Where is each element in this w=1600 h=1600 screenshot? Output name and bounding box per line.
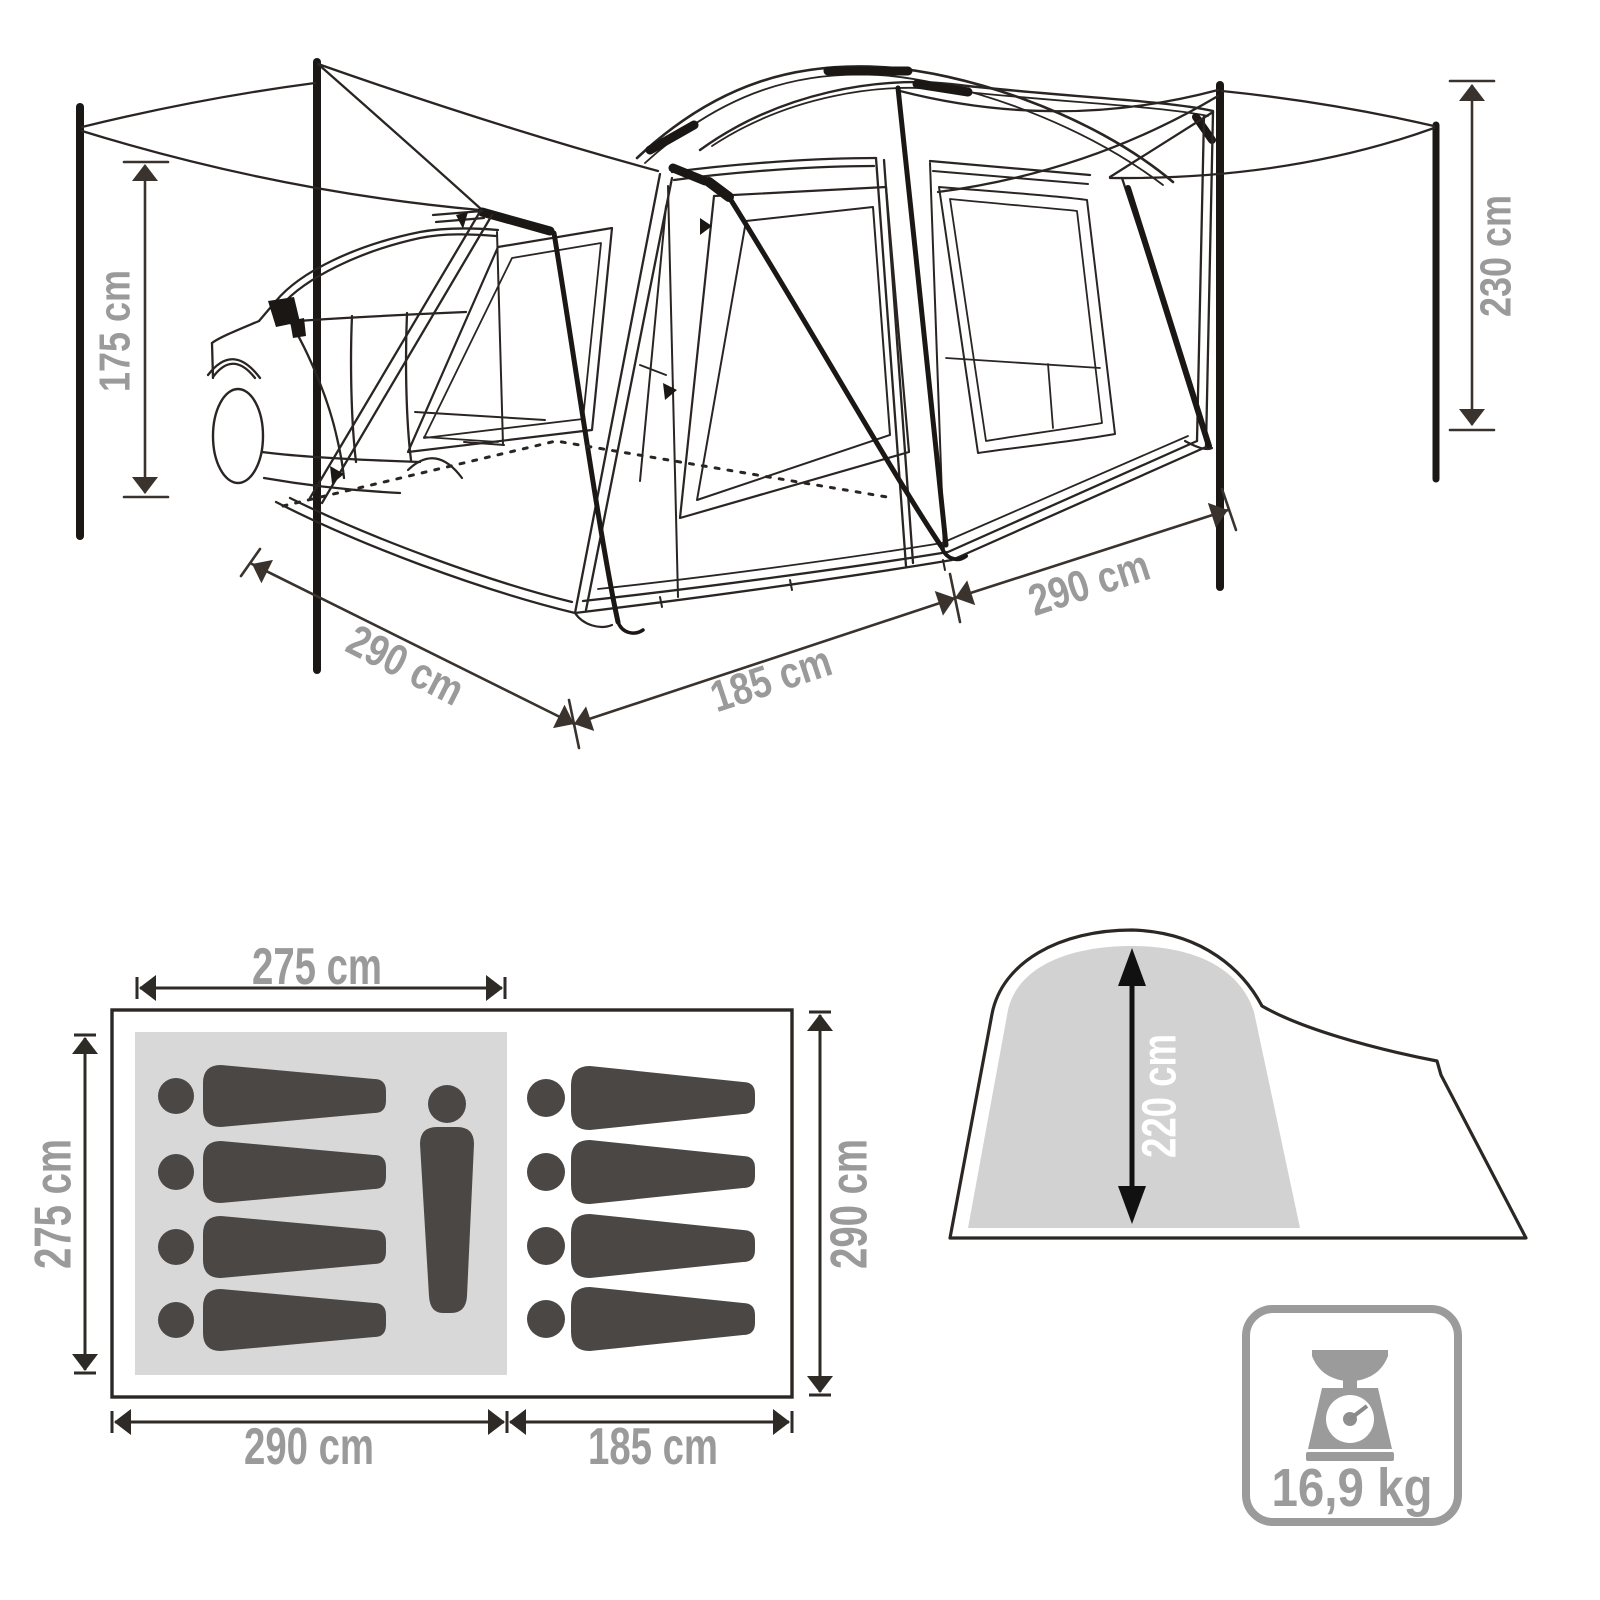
- svg-text:230 cm: 230 cm: [1472, 195, 1521, 317]
- svg-text:290 cm: 290 cm: [821, 1139, 879, 1269]
- svg-text:290 cm: 290 cm: [244, 1418, 374, 1476]
- svg-text:275 cm: 275 cm: [25, 1139, 83, 1269]
- svg-text:175 cm: 175 cm: [91, 270, 140, 392]
- svg-text:275 cm: 275 cm: [252, 938, 382, 996]
- svg-text:185 cm: 185 cm: [588, 1418, 718, 1476]
- svg-text:220 cm: 220 cm: [1134, 1034, 1187, 1158]
- svg-text:16,9 kg: 16,9 kg: [1272, 1458, 1433, 1518]
